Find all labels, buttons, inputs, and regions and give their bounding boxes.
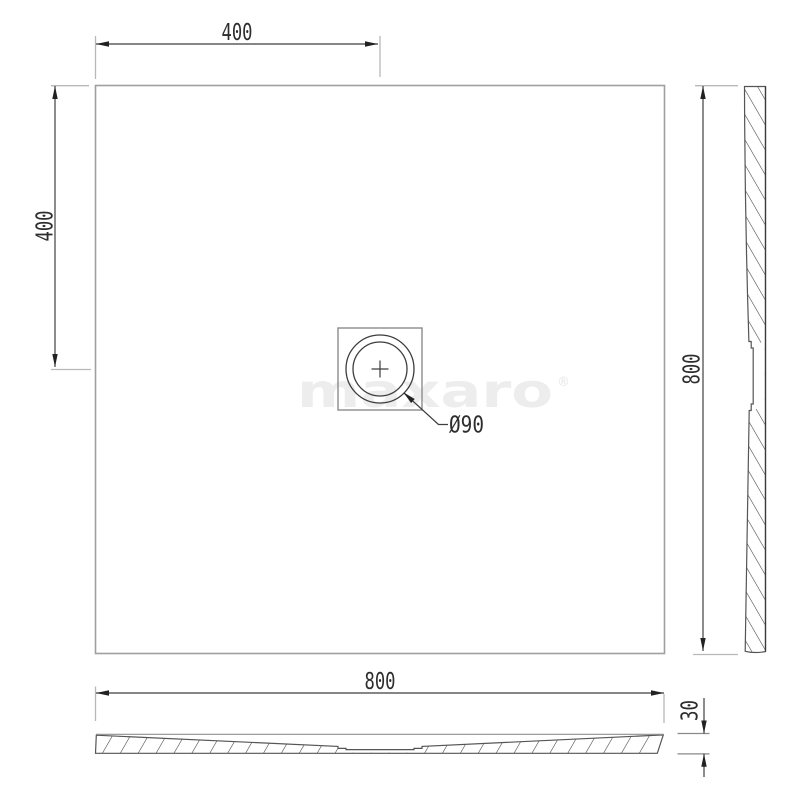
arrowhead-icon: [365, 41, 378, 46]
watermark-registered-icon: ®: [557, 375, 570, 390]
arrowhead-icon: [96, 41, 109, 46]
front-section-view: [96, 734, 664, 753]
arrowhead-icon: [52, 86, 57, 99]
watermark-text: maxaro: [297, 364, 553, 418]
dim-overall-width-label: 800: [365, 669, 396, 695]
dim-overall-width: 800: [96, 669, 665, 723]
arrowhead-icon: [96, 690, 109, 695]
side-section-view: [745, 87, 766, 653]
dim-drain-offset-y: 400: [33, 86, 92, 370]
dim-drain-offset-x: 400: [96, 20, 381, 79]
dim-drain-offset-y-label: 400: [33, 211, 59, 242]
arrowhead-icon: [52, 354, 57, 367]
dim-drain-offset-x-label: 400: [222, 20, 253, 46]
shower-tray-drawing: maxaro ® 400 400: [0, 0, 800, 800]
dim-overall-depth: 800: [680, 86, 739, 655]
drain-diameter-label: Ø90: [449, 413, 484, 439]
arrowhead-icon: [651, 690, 664, 695]
arrowhead-icon: [701, 721, 706, 734]
arrowhead-icon: [700, 638, 705, 651]
dim-tray-height-label: 30: [678, 700, 704, 721]
dim-overall-depth-label: 800: [680, 354, 706, 385]
technical-drawing-page: maxaro ® 400 400: [0, 0, 800, 800]
side-section-drain-recess: [752, 343, 764, 410]
arrowhead-icon: [700, 86, 705, 99]
dim-tray-height: 30: [678, 698, 710, 777]
arrowhead-icon: [701, 754, 706, 767]
